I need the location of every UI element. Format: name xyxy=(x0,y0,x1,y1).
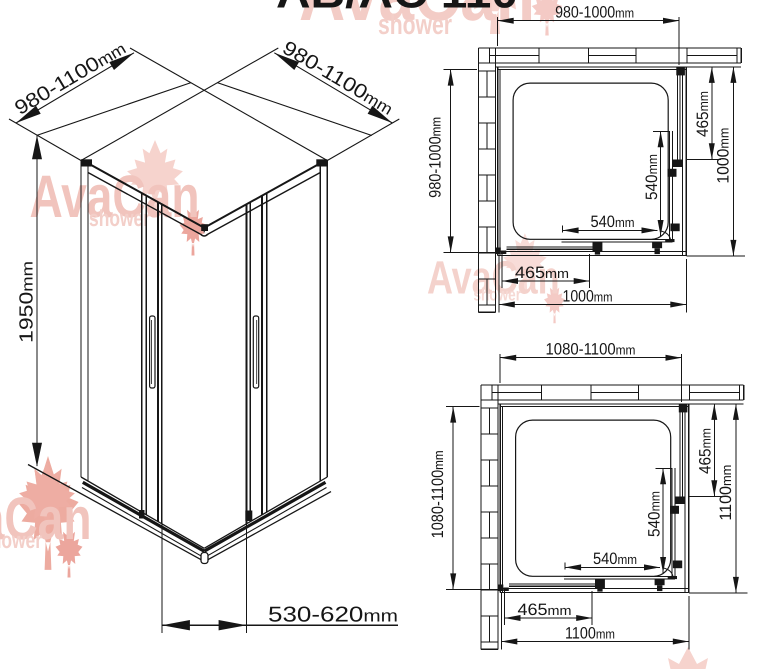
svg-text:1000mm: 1000mm xyxy=(715,128,733,184)
svg-text:530-620mm: 530-620mm xyxy=(268,603,398,627)
svg-text:980-1000mm: 980-1000mm xyxy=(555,4,634,22)
svg-text:540mm: 540mm xyxy=(591,213,635,231)
svg-text:1100mm: 1100mm xyxy=(717,465,735,521)
svg-text:540mm: 540mm xyxy=(646,491,664,537)
svg-text:540mm: 540mm xyxy=(643,154,661,200)
svg-text:AB/AC 110: AB/AC 110 xyxy=(276,0,518,18)
svg-text:shower: shower xyxy=(0,527,42,553)
svg-text:1950mm: 1950mm xyxy=(17,261,38,343)
svg-text:1100mm: 1100mm xyxy=(565,625,615,643)
svg-text:465mm: 465mm xyxy=(694,91,712,137)
svg-text:shower: shower xyxy=(473,284,521,304)
svg-text:980-1000mm: 980-1000mm xyxy=(427,117,445,198)
svg-text:465mm: 465mm xyxy=(518,601,572,619)
svg-text:1080-1100mm: 1080-1100mm xyxy=(546,341,636,359)
svg-text:1080-1100mm: 1080-1100mm xyxy=(429,450,447,538)
svg-text:1000mm: 1000mm xyxy=(563,288,613,306)
svg-text:465mm: 465mm xyxy=(697,428,715,474)
svg-text:540mm: 540mm xyxy=(593,550,637,568)
svg-text:465mm: 465mm xyxy=(515,264,569,282)
